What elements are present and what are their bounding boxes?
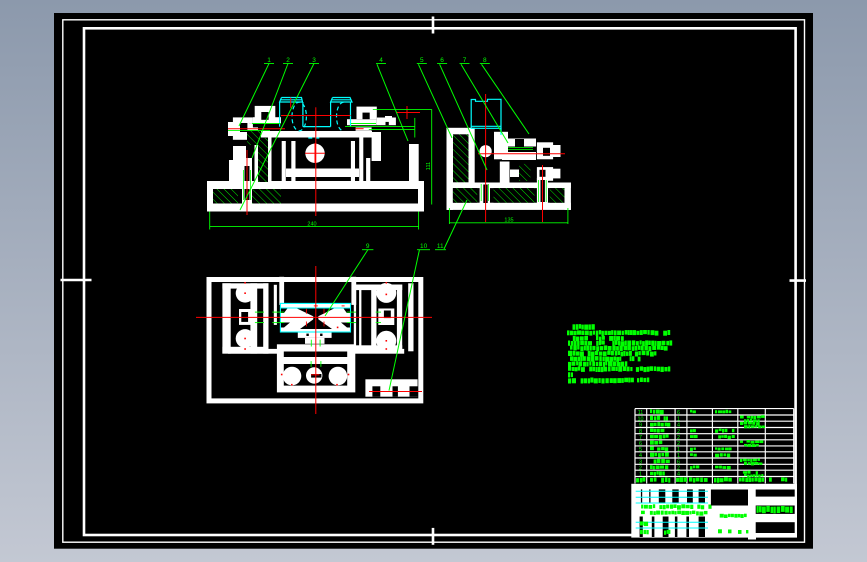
svg-text:6: 6 bbox=[677, 410, 680, 416]
svg-text:11: 11 bbox=[638, 410, 644, 416]
svg-text:11: 11 bbox=[437, 243, 444, 250]
svg-text:2: 2 bbox=[677, 465, 680, 471]
svg-text:10: 10 bbox=[638, 416, 644, 422]
svg-text:5: 5 bbox=[639, 447, 642, 453]
svg-text:2: 2 bbox=[677, 435, 680, 441]
svg-text:2: 2 bbox=[286, 57, 290, 64]
svg-text:5: 5 bbox=[420, 57, 424, 64]
svg-text:2: 2 bbox=[677, 429, 680, 435]
svg-text:10: 10 bbox=[420, 243, 428, 250]
svg-text:9: 9 bbox=[366, 243, 370, 250]
svg-text:1: 1 bbox=[677, 447, 680, 453]
svg-text:1: 1 bbox=[677, 453, 680, 459]
svg-text:4: 4 bbox=[677, 472, 680, 478]
svg-text:8: 8 bbox=[639, 429, 642, 435]
svg-text:135: 135 bbox=[504, 217, 513, 223]
svg-text:7: 7 bbox=[639, 435, 642, 441]
svg-text:4: 4 bbox=[639, 453, 642, 459]
svg-text:8: 8 bbox=[483, 57, 487, 64]
svg-text:4: 4 bbox=[677, 423, 680, 429]
svg-text:7: 7 bbox=[463, 57, 467, 64]
svg-text:1: 1 bbox=[677, 416, 680, 422]
svg-text:2: 2 bbox=[639, 465, 642, 471]
svg-text:6: 6 bbox=[440, 57, 444, 64]
svg-text:4: 4 bbox=[379, 57, 383, 64]
svg-text:9: 9 bbox=[639, 423, 642, 429]
svg-text:1: 1 bbox=[639, 472, 642, 478]
svg-text:111: 111 bbox=[426, 162, 432, 170]
svg-text:240: 240 bbox=[307, 221, 316, 227]
svg-text:1: 1 bbox=[267, 57, 271, 64]
svg-text:3: 3 bbox=[312, 57, 316, 64]
